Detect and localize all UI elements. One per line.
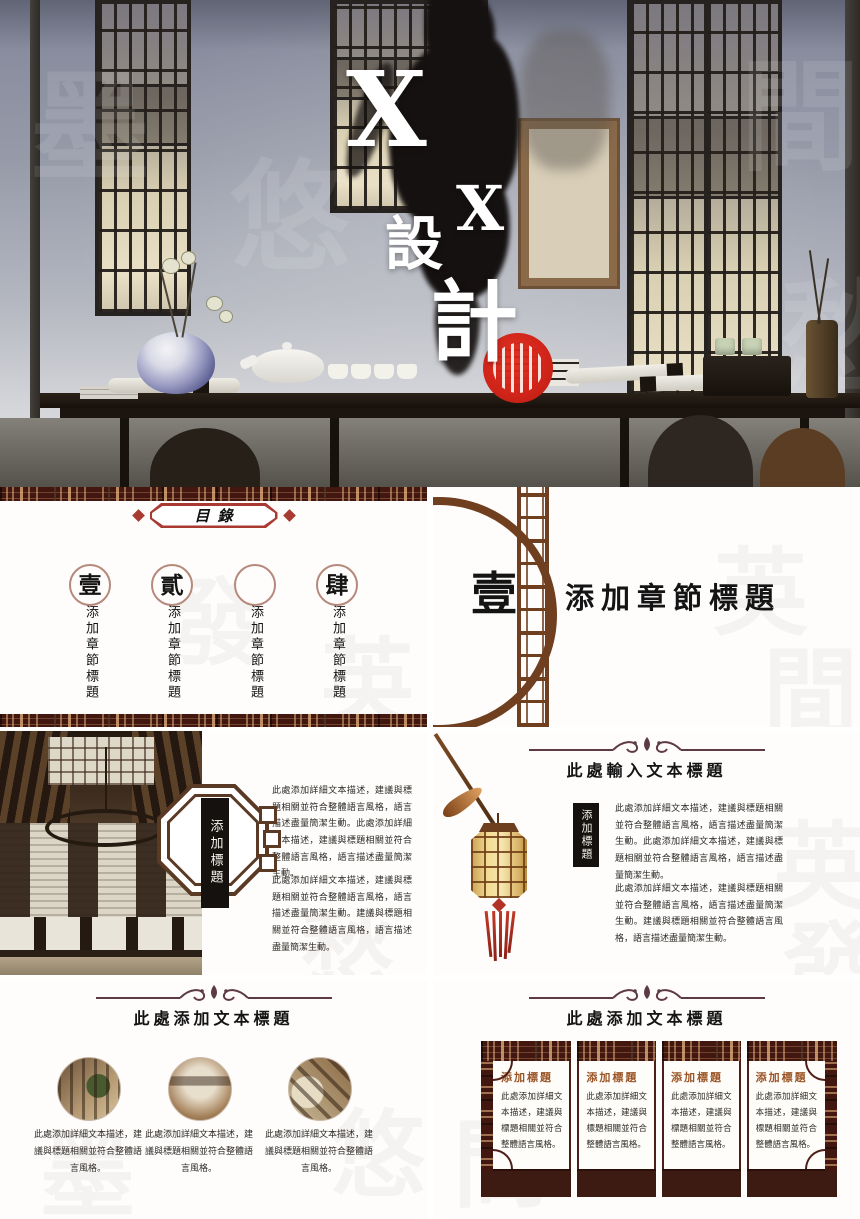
panel-text: 此處添加詳細文本描述，建議與標題相關並符合整體語言風格。 xyxy=(586,1089,647,1154)
tall-vase xyxy=(806,320,838,398)
lattice-border-top xyxy=(0,487,427,501)
flower-blossom xyxy=(181,251,196,265)
slide-title: 此處添加文本標題 xyxy=(433,1005,860,1029)
lattice-panel[interactable]: 添加標題 此處添加詳細文本描述，建議與標題相關並符合整體語言風格。 xyxy=(577,1041,656,1197)
template-preview-page: 墨 悠 間 愁 xyxy=(0,0,860,1219)
tea-cup xyxy=(351,364,371,379)
calligraphy-watermark: 墨 xyxy=(30,30,150,204)
tea-cup xyxy=(397,364,417,379)
flourish-divider xyxy=(89,983,339,1007)
section-title: 添加章節標題 xyxy=(565,575,781,617)
panel-title: 添加標題 xyxy=(671,1069,732,1085)
cover-title-char: X xyxy=(456,178,504,240)
toc-item-circle[interactable] xyxy=(234,564,276,606)
gallery-caption: 此處添加詳細文本描述，建議與標題相關並符合整體語言風格。 xyxy=(145,1127,253,1178)
side-title-box: 添加標題 xyxy=(573,803,599,867)
table-leg xyxy=(620,418,629,487)
section-slide[interactable]: 英 間 壹 添加章節標題 xyxy=(433,487,860,727)
toc-item-circle[interactable]: 壹 xyxy=(69,564,111,606)
cover-title-char: 計 xyxy=(430,278,518,366)
panel-footer-band xyxy=(747,1169,837,1197)
panel-lattice-column xyxy=(825,1061,837,1171)
toc-item-label: 添加章節標題 xyxy=(246,605,265,701)
toc-item-number: 壹 xyxy=(79,574,102,597)
cover-slide[interactable]: 墨 悠 間 愁 xyxy=(0,0,860,487)
table-leg xyxy=(120,418,129,487)
toc-item-number: 貳 xyxy=(161,574,184,597)
toc-item-label: 添加章節標題 xyxy=(163,605,182,701)
slide-title: 此處輸入文本標題 xyxy=(433,757,860,781)
celadon-cup xyxy=(742,338,762,355)
panel-footer-band xyxy=(577,1169,656,1197)
panels-slide[interactable]: 間 此處添加文本標題 添加標題 此處添加詳細文本描述，建議與標題相關並符合整體語… xyxy=(433,979,860,1219)
cover-title-char: 設 xyxy=(385,215,443,273)
interior-content-slide[interactable]: 愁 添加標題 此處添加詳細文本描述，建議與標題相關並符合整體語言風格，語言描述盡… xyxy=(0,731,427,975)
gallery-photo[interactable] xyxy=(168,1057,232,1121)
celadon-cup xyxy=(715,338,735,355)
section-number: 壹 xyxy=(471,571,517,617)
gallery-caption: 此處添加詳細文本描述，建議與標題相關並符合整體語言風格。 xyxy=(265,1127,373,1178)
flower-blossom xyxy=(206,296,223,311)
toc-item-label: 添加章節標題 xyxy=(81,605,100,701)
panel-lattice-header xyxy=(747,1041,837,1061)
teapot xyxy=(252,349,324,383)
calligraphy-watermark: 間 xyxy=(740,20,860,194)
lattice-panel[interactable]: 添加標題 此處添加詳細文本描述，建議與標題相關並符合整體語言風格。 xyxy=(662,1041,741,1197)
diamond-ornament xyxy=(132,509,145,522)
panel-lattice-header xyxy=(481,1041,571,1061)
chandelier xyxy=(45,809,165,847)
slide-title: 此處添加文本標題 xyxy=(0,1005,427,1029)
panel-text: 此處添加詳細文本描述，建議與標題相關並符合整體語言風格。 xyxy=(501,1089,562,1154)
flourish-divider xyxy=(522,983,772,1007)
panel-text: 此處添加詳細文本描述，建議與標題相關並符合整體語言風格。 xyxy=(756,1089,817,1154)
side-title-box: 添加標題 xyxy=(201,798,229,908)
panel-text: 此處添加詳細文本描述，建議與標題相關並符合整體語言風格。 xyxy=(671,1089,732,1154)
tea-cup xyxy=(374,364,394,379)
cover-title-char: X xyxy=(346,58,427,162)
toc-header-box: 目錄 xyxy=(150,503,278,528)
table-leg xyxy=(330,418,339,487)
gallery-caption: 此處添加詳細文本描述，建議與標題相關並符合整體語言風格。 xyxy=(34,1127,142,1178)
panel-lattice-column xyxy=(481,1061,493,1171)
flourish-divider xyxy=(522,735,772,759)
toc-item-label: 添加章節標題 xyxy=(328,605,347,701)
calligraphy-watermark: 發 xyxy=(783,891,860,975)
porcelain-vase xyxy=(137,332,215,394)
toc-slide[interactable]: 發 英 目錄 壹 貳 肆 添加章節標題 添加章節標題 添加章節標題 添加章節標題 xyxy=(0,487,427,727)
calligraphy-watermark: 間 xyxy=(763,617,858,727)
lattice-strip xyxy=(517,487,549,727)
flower-blossom xyxy=(219,310,233,323)
body-paragraph: 此處添加詳細文本描述，建議與標題相關並符合整體語言風格，語言描述盡量簡潔生動。建… xyxy=(615,881,783,948)
gallery-photo[interactable] xyxy=(288,1057,352,1121)
panel-title: 添加標題 xyxy=(501,1069,562,1085)
lattice-border-bottom xyxy=(0,714,427,727)
panel-lattice-header xyxy=(577,1041,656,1061)
calligraphy-watermark: 英 xyxy=(773,791,860,928)
panel-footer-band xyxy=(481,1169,571,1197)
diamond-ornament xyxy=(283,509,296,522)
lantern-body xyxy=(471,832,527,898)
body-paragraph: 此處添加詳細文本描述，建議與標題相關並符合整體語言風格，語言描述盡量簡潔生動。此… xyxy=(615,801,783,884)
tea-box xyxy=(703,356,791,396)
panel-footer-band xyxy=(662,1169,741,1197)
lattice-panel[interactable]: 添加標題 此處添加詳細文本描述，建議與標題相關並符合整體語言風格。 xyxy=(481,1041,571,1197)
panel-title: 添加標題 xyxy=(586,1069,647,1085)
toc-item-circle[interactable]: 貳 xyxy=(151,564,193,606)
lantern-tassel xyxy=(483,911,515,961)
gallery-photo[interactable] xyxy=(57,1057,121,1121)
toc-title: 目錄 xyxy=(186,505,240,526)
panel-lattice-header xyxy=(662,1041,741,1061)
lantern-content-slide[interactable]: 英 發 此處輸入文本標題 添加標題 此處添 xyxy=(433,731,860,975)
gallery-slide[interactable]: 墨 悠 此處添加文本標題 此處添加詳細文本描述，建議與標題相關並符合整體語言風格… xyxy=(0,979,427,1219)
sofa-row xyxy=(0,917,202,957)
lattice-panel[interactable]: 添加標題 此處添加詳細文本描述，建議與標題相關並符合整體語言風格。 xyxy=(747,1041,837,1197)
body-paragraph: 此處添加詳細文本描述，建議與標題相關並符合整體語言風格，語言描述盡量簡潔生動。建… xyxy=(272,873,412,956)
body-paragraph: 此處添加詳細文本描述，建議與標題相關並符合整體語言風格，語言描述盡量簡潔生動。此… xyxy=(272,783,412,883)
tea-cup xyxy=(328,364,348,379)
flower-blossom xyxy=(162,258,180,274)
toc-item-circle[interactable]: 肆 xyxy=(316,564,358,606)
toc-item-number: 肆 xyxy=(326,574,349,597)
